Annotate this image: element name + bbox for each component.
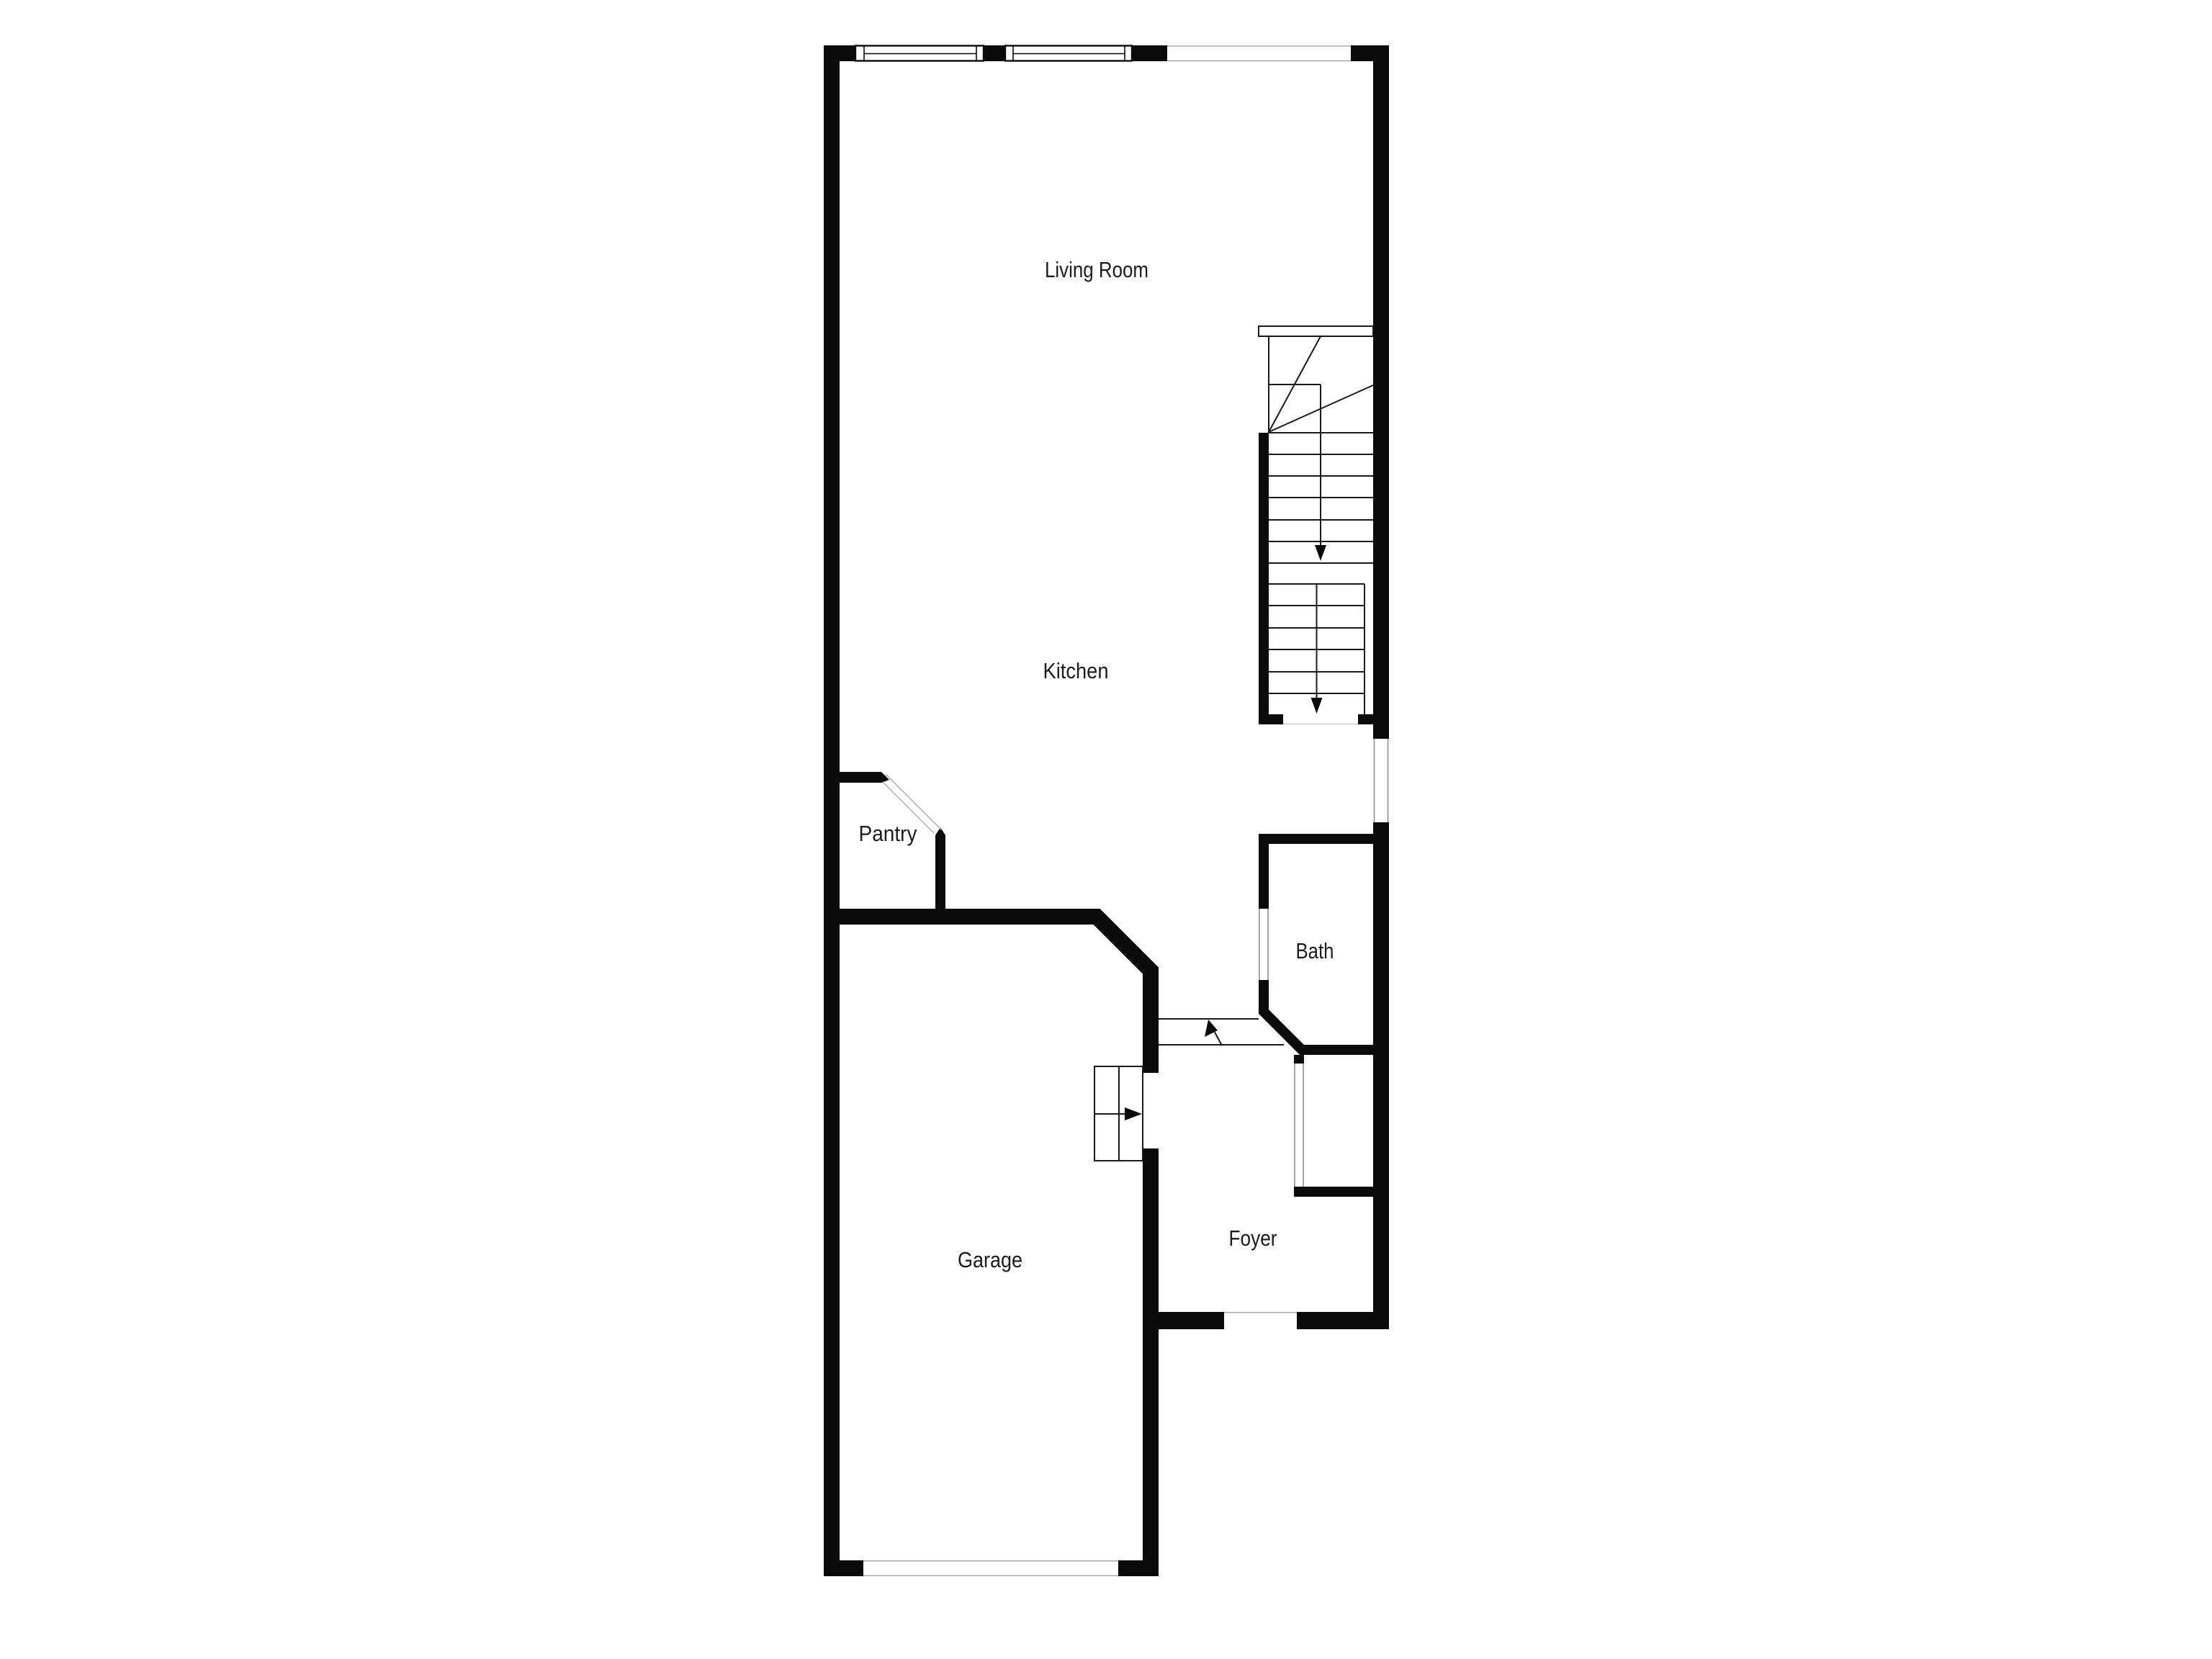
svg-text:Foyer: Foyer bbox=[1229, 1226, 1277, 1251]
svg-text:Bath: Bath bbox=[1296, 938, 1334, 963]
svg-text:Pantry: Pantry bbox=[859, 821, 917, 846]
svg-text:Kitchen: Kitchen bbox=[1043, 658, 1109, 683]
svg-text:Living Room: Living Room bbox=[1045, 257, 1148, 282]
svg-text:Garage: Garage bbox=[958, 1247, 1022, 1272]
